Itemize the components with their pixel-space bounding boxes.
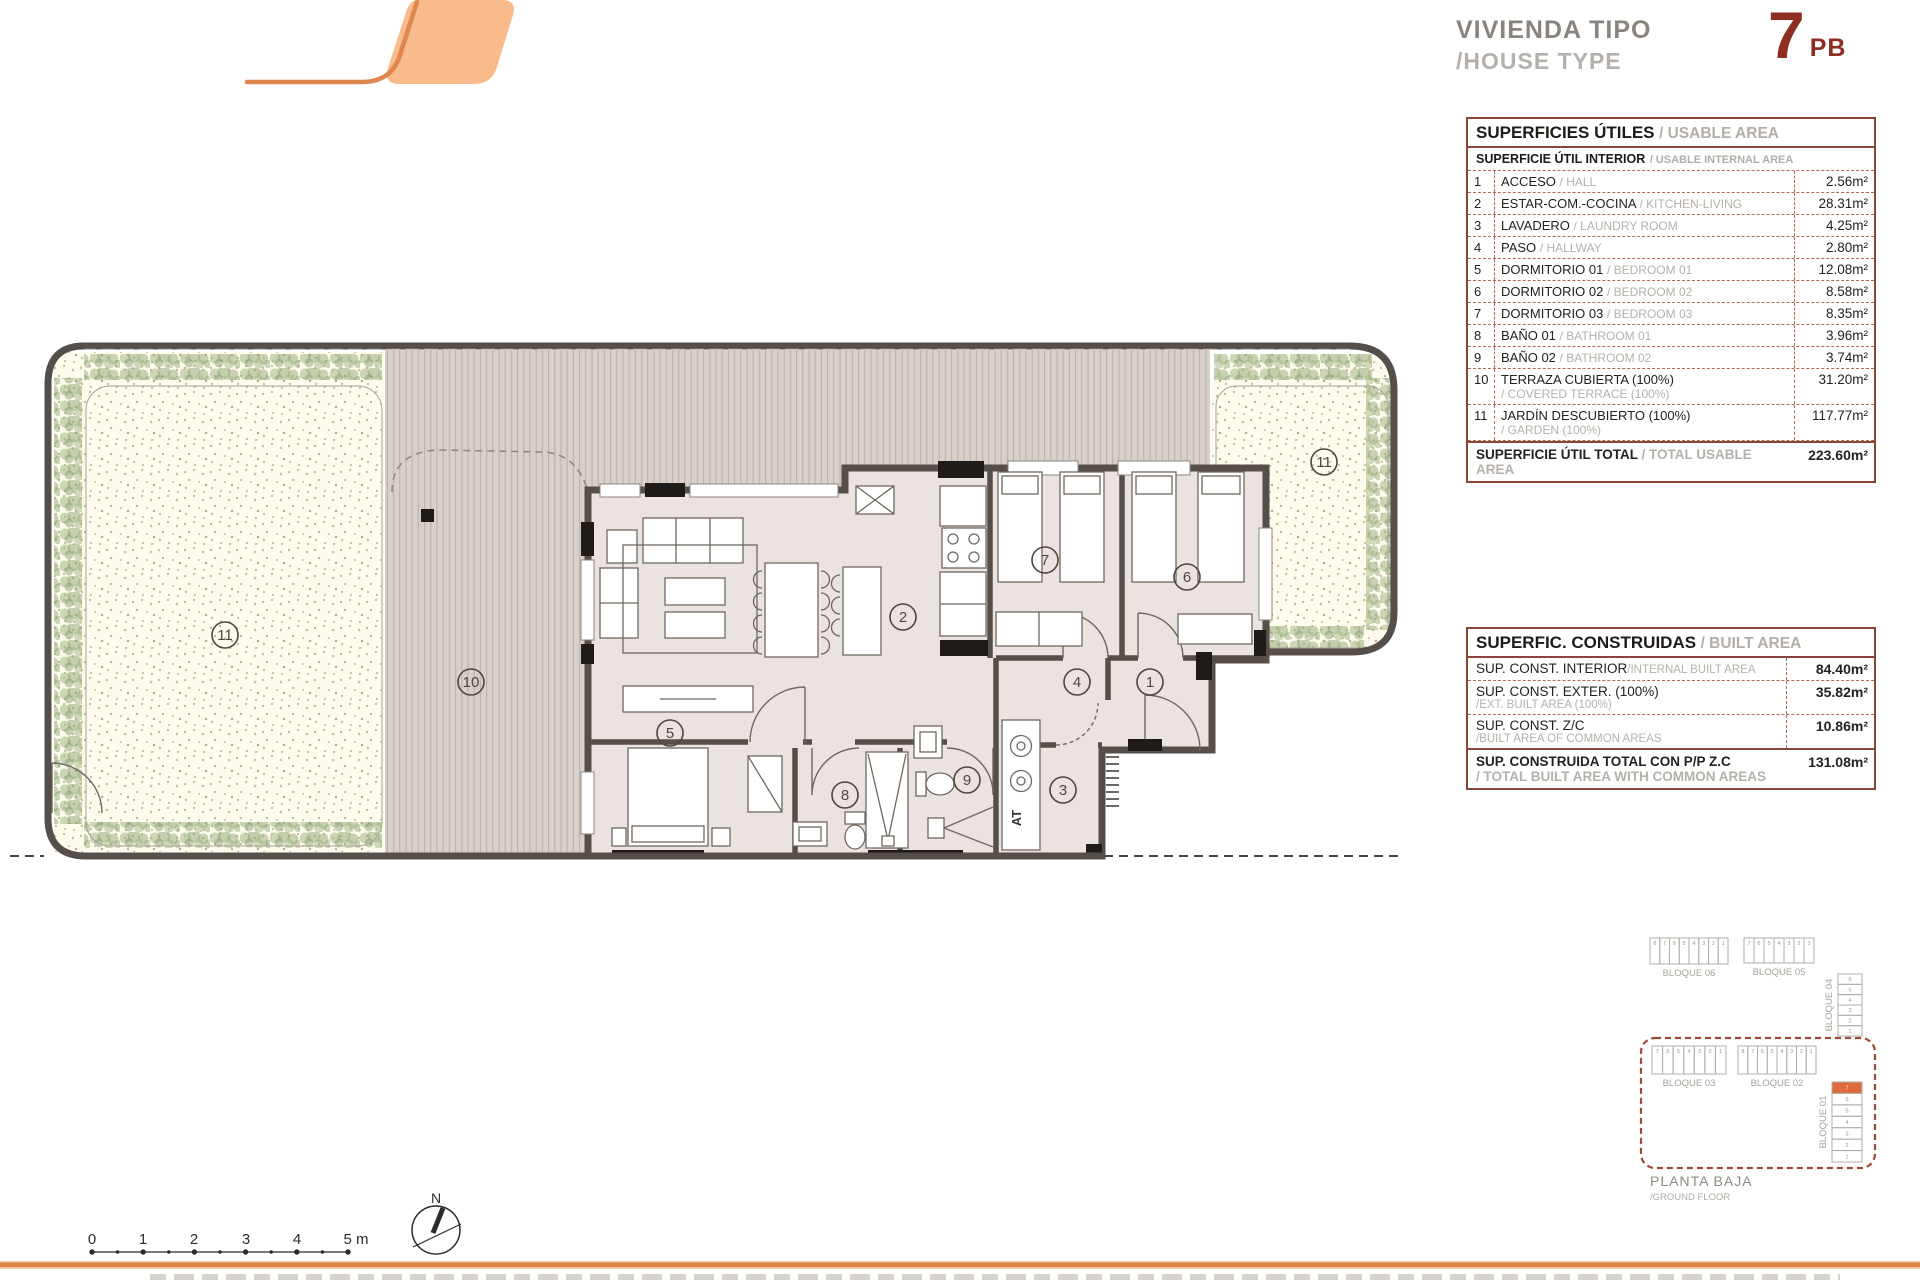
row-en: /EXT. BUILT AREA (100%) — [1476, 699, 1778, 711]
north-label: N — [431, 1190, 441, 1206]
row-en: / LAUNDRY ROOM — [1574, 219, 1678, 233]
room-label-9: 9 — [963, 772, 971, 789]
key-plan-block: 7654321BLOQUE 03 — [1652, 1046, 1726, 1089]
svg-text:2: 2 — [1848, 1019, 1851, 1025]
usable-table-subheader: SUPERFICIE ÚTIL INTERIOR / USABLE INTERN… — [1468, 148, 1874, 171]
key-plan-block: 7654321BLOQUE 01 — [1818, 1082, 1862, 1162]
key-plan-block-label: BLOQUE 01 — [1818, 1096, 1829, 1149]
svg-text:3: 3 — [1790, 1049, 1793, 1055]
table-row: 9BAÑO 02 / BATHROOM 023.74m² — [1468, 347, 1874, 369]
built-area-table: SUPERFIC. CONSTRUIDAS / BUILT AREA SUP. … — [1466, 627, 1876, 790]
scale-labels: 0 1 2 3 4 5 m — [88, 1231, 369, 1248]
row-value: 3.74m² — [1794, 347, 1874, 368]
row-value: 8.58m² — [1794, 281, 1874, 302]
row-names: DORMITORIO 03 / BEDROOM 03 — [1495, 303, 1794, 324]
svg-text:2: 2 — [1845, 1143, 1848, 1149]
key-plan-caption-es: PLANTA BAJA — [1650, 1173, 1753, 1189]
row-value: 2.56m² — [1794, 171, 1874, 192]
row-es: ESTAR-COM.-COCINA — [1501, 196, 1636, 211]
key-plan-caption-en: /GROUND FLOOR — [1650, 1192, 1730, 1203]
usable-table-title: SUPERFICIES ÚTILES / USABLE AREA — [1468, 119, 1874, 148]
scale-label-3: 3 — [242, 1231, 250, 1248]
row-es: JARDÍN DESCUBIERTO (100%) — [1501, 408, 1691, 423]
usable-sub-en: / USABLE INTERNAL AREA — [1650, 154, 1794, 166]
svg-text:1: 1 — [1722, 941, 1725, 947]
scale-label-0: 0 — [88, 1231, 96, 1248]
row-value: 35.82m² — [1786, 681, 1874, 714]
row-en: / BEDROOM 03 — [1607, 307, 1692, 321]
row-es: DORMITORIO 02 — [1501, 284, 1603, 299]
row-names: LAVADERO / LAUNDRY ROOM — [1495, 215, 1794, 236]
row-value: 117.77m² — [1794, 405, 1874, 440]
row-value: 8.35m² — [1794, 303, 1874, 324]
built-title-es: SUPERFIC. CONSTRUIDAS — [1476, 633, 1696, 652]
table-row: 10TERRAZA CUBIERTA (100%) / COVERED TERR… — [1468, 369, 1874, 405]
room-label-10: 10 — [463, 674, 480, 691]
row-names: SUP. CONST. Z/C/BUILT AREA OF COMMON ARE… — [1468, 715, 1786, 748]
svg-text:5: 5 — [1677, 1049, 1680, 1055]
row-names: BAÑO 02 / BATHROOM 02 — [1495, 347, 1794, 368]
row-num: 1 — [1468, 171, 1495, 192]
row-es: PASO — [1501, 240, 1536, 255]
svg-text:7: 7 — [1845, 1086, 1848, 1092]
svg-text:1: 1 — [1719, 1049, 1722, 1055]
svg-text:4: 4 — [1692, 941, 1695, 947]
total-value: 223.60m² — [1786, 446, 1874, 478]
usable-total-row: SUPERFICIE ÚTIL TOTAL / TOTAL USABLE ARE… — [1468, 441, 1874, 481]
row-en: / COVERED TERRACE (100%) — [1501, 387, 1788, 401]
svg-text:4: 4 — [1780, 1049, 1783, 1055]
row-es: SUP. CONST. INTERIOR — [1476, 661, 1627, 676]
table-row: 7DORMITORIO 03 / BEDROOM 038.35m² — [1468, 303, 1874, 325]
svg-text:7: 7 — [1747, 941, 1750, 947]
svg-text:2: 2 — [1709, 1049, 1712, 1055]
scale-label-5: 5 m — [343, 1231, 368, 1248]
svg-text:1: 1 — [1807, 941, 1810, 947]
row-es: DORMITORIO 01 — [1501, 262, 1603, 277]
svg-text:6: 6 — [1845, 1097, 1848, 1103]
usable-title-es: SUPERFICIES ÚTILES — [1476, 123, 1655, 142]
room-label-2: 2 — [899, 609, 907, 626]
built-total-row: SUP. CONSTRUIDA TOTAL CON P/P Z.C/ TOTAL… — [1468, 748, 1874, 788]
table-row: SUP. CONST. INTERIOR/INTERNAL BUILT AREA… — [1468, 658, 1874, 681]
svg-text:6: 6 — [1761, 1049, 1764, 1055]
key-plan-block: 654321BLOQUE 04 — [1824, 974, 1862, 1036]
total-names: SUP. CONSTRUIDA TOTAL CON P/P Z.C/ TOTAL… — [1468, 753, 1786, 785]
usable-sub-es: SUPERFICIE ÚTIL INTERIOR — [1476, 152, 1645, 166]
svg-text:4: 4 — [1845, 1120, 1848, 1126]
row-en: / BATHROOM 01 — [1560, 329, 1652, 343]
row-es: LAVADERO — [1501, 218, 1570, 233]
table-row: 1ACCESO / HALL2.56m² — [1468, 171, 1874, 193]
north-arrow: N — [412, 1190, 461, 1254]
key-plan-block-label: BLOQUE 06 — [1663, 968, 1716, 979]
logo-swoosh — [247, 2, 417, 82]
svg-text:7: 7 — [1751, 1049, 1754, 1055]
row-es: DORMITORIO 03 — [1501, 306, 1603, 321]
row-names: PASO / HALLWAY — [1495, 237, 1794, 258]
svg-text:6: 6 — [1848, 977, 1851, 983]
row-value: 3.96m² — [1794, 325, 1874, 346]
svg-text:5: 5 — [1845, 1109, 1848, 1115]
built-title-en: / BUILT AREA — [1701, 635, 1802, 652]
row-names: DORMITORIO 02 / BEDROOM 02 — [1495, 281, 1794, 302]
scale-label-4: 4 — [293, 1231, 301, 1248]
scale-label-1: 1 — [139, 1231, 147, 1248]
unit-suffix: PB — [1810, 34, 1847, 63]
row-en: /BUILT AREA OF COMMON AREAS — [1476, 733, 1778, 745]
scale-bar — [90, 1250, 350, 1254]
svg-text:7: 7 — [1663, 941, 1666, 947]
row-names: SUP. CONST. INTERIOR/INTERNAL BUILT AREA — [1468, 658, 1786, 680]
row-es: BAÑO 02 — [1501, 350, 1556, 365]
row-en: / BEDROOM 01 — [1607, 263, 1692, 277]
svg-text:5: 5 — [1767, 941, 1770, 947]
room-label-8: 8 — [841, 787, 849, 804]
svg-text:6: 6 — [1673, 941, 1676, 947]
row-es: ACCESO — [1501, 174, 1556, 189]
svg-text:4: 4 — [1777, 941, 1780, 947]
row-num: 10 — [1468, 369, 1495, 404]
row-names: DORMITORIO 01 / BEDROOM 01 — [1495, 259, 1794, 280]
svg-text:6: 6 — [1666, 1049, 1669, 1055]
room-label-4: 4 — [1073, 674, 1081, 691]
table-row: 6DORMITORIO 02 / BEDROOM 028.58m² — [1468, 281, 1874, 303]
row-num: 4 — [1468, 237, 1495, 258]
at-label: AT — [1009, 810, 1024, 826]
usable-title-en: / USABLE AREA — [1659, 125, 1779, 142]
total-es: SUPERFICIE ÚTIL TOTAL — [1476, 447, 1638, 462]
row-en: / HALL — [1560, 175, 1597, 189]
bottom-accent-band — [0, 1261, 1920, 1269]
svg-text:3: 3 — [1845, 1131, 1848, 1137]
row-en: / BEDROOM 02 — [1607, 285, 1692, 299]
svg-text:3: 3 — [1702, 941, 1705, 947]
built-table-title: SUPERFIC. CONSTRUIDAS / BUILT AREA — [1468, 629, 1874, 658]
svg-text:1: 1 — [1845, 1154, 1848, 1160]
svg-text:2: 2 — [1797, 941, 1800, 947]
row-num: 9 — [1468, 347, 1495, 368]
row-num: 5 — [1468, 259, 1495, 280]
row-num: 7 — [1468, 303, 1495, 324]
row-value: 31.20m² — [1794, 369, 1874, 404]
radiator — [1106, 757, 1119, 806]
svg-text:1: 1 — [1810, 1049, 1813, 1055]
unit-number: 7 — [1768, 2, 1805, 68]
room-label-5: 5 — [666, 725, 674, 742]
row-value: 2.80m² — [1794, 237, 1874, 258]
row-num: 3 — [1468, 215, 1495, 236]
row-en: / KITCHEN-LIVING — [1639, 197, 1742, 211]
total-value: 131.08m² — [1786, 753, 1874, 785]
house-type-badge: 7 PB — [1768, 2, 1846, 68]
row-es: BAÑO 01 — [1501, 328, 1556, 343]
row-value: 84.40m² — [1786, 658, 1874, 680]
svg-text:8: 8 — [1653, 941, 1656, 947]
scale-label-2: 2 — [190, 1231, 198, 1248]
row-names: SUP. CONST. EXTER. (100%)/EXT. BUILT ARE… — [1468, 681, 1786, 714]
svg-text:5: 5 — [1848, 988, 1851, 994]
row-names: BAÑO 01 / BATHROOM 01 — [1495, 325, 1794, 346]
row-num: 6 — [1468, 281, 1495, 302]
row-num: 11 — [1468, 405, 1495, 440]
row-en: / BATHROOM 02 — [1560, 351, 1652, 365]
table-row: 8BAÑO 01 / BATHROOM 013.96m² — [1468, 325, 1874, 347]
room-label-7: 7 — [1041, 552, 1049, 569]
key-plan-block: 87654321BLOQUE 02 — [1738, 1046, 1816, 1089]
row-num: 2 — [1468, 193, 1495, 214]
key-plan-block-label: BLOQUE 03 — [1663, 1078, 1716, 1089]
usable-area-table: SUPERFICIES ÚTILES / USABLE AREA SUPERFI… — [1466, 117, 1876, 483]
svg-text:4: 4 — [1848, 998, 1851, 1004]
row-names: ESTAR-COM.-COCINA / KITCHEN-LIVING — [1495, 193, 1794, 214]
svg-text:3: 3 — [1698, 1049, 1701, 1055]
row-es: SUP. CONST. EXTER. (100%) — [1476, 684, 1659, 699]
total-en: / TOTAL BUILT AREA WITH COMMON AREAS — [1476, 769, 1778, 784]
key-plan-block: 7654321BLOQUE 05 — [1744, 938, 1814, 978]
key-plan-block-label: BLOQUE 02 — [1751, 1078, 1804, 1089]
table-row: SUP. CONST. EXTER. (100%)/EXT. BUILT ARE… — [1468, 681, 1874, 715]
row-names: JARDÍN DESCUBIERTO (100%) / GARDEN (100%… — [1495, 405, 1794, 440]
row-num: 8 — [1468, 325, 1495, 346]
key-plan-block-label: BLOQUE 04 — [1824, 979, 1835, 1032]
svg-text:3: 3 — [1787, 941, 1790, 947]
bottom-cutoff-text — [150, 1274, 1840, 1280]
svg-text:2: 2 — [1800, 1049, 1803, 1055]
plan-sheet: VIVIENDA TIPO /HOUSE TYPE 7 PB SUPERFICI… — [0, 0, 1920, 1280]
row-value: 28.31m² — [1794, 193, 1874, 214]
table-row: SUP. CONST. Z/C/BUILT AREA OF COMMON ARE… — [1468, 715, 1874, 748]
left-garden — [54, 352, 384, 852]
table-row: 4PASO / HALLWAY2.80m² — [1468, 237, 1874, 259]
row-es: SUP. CONST. Z/C — [1476, 718, 1585, 733]
svg-text:6: 6 — [1757, 941, 1760, 947]
svg-text:4: 4 — [1687, 1049, 1690, 1055]
row-value: 4.25m² — [1794, 215, 1874, 236]
table-row: 2ESTAR-COM.-COCINA / KITCHEN-LIVING28.31… — [1468, 193, 1874, 215]
svg-text:7: 7 — [1656, 1049, 1659, 1055]
svg-text:3: 3 — [1848, 1008, 1851, 1014]
table-row: 5DORMITORIO 01 / BEDROOM 0112.08m² — [1468, 259, 1874, 281]
row-names: TERRAZA CUBIERTA (100%) / COVERED TERRAC… — [1495, 369, 1794, 404]
key-plan: 87654321BLOQUE 067654321BLOQUE 05654321B… — [1630, 925, 1900, 1215]
svg-text:5: 5 — [1683, 941, 1686, 947]
row-en: / HALLWAY — [1540, 241, 1602, 255]
svg-text:2: 2 — [1712, 941, 1715, 947]
total-es: SUP. CONSTRUIDA TOTAL CON P/P Z.C — [1476, 754, 1731, 769]
key-plan-block-label: BLOQUE 05 — [1753, 967, 1806, 978]
brand-logo — [230, 0, 530, 95]
svg-text:5: 5 — [1771, 1049, 1774, 1055]
svg-text:8: 8 — [1741, 1049, 1744, 1055]
row-value: 10.86m² — [1786, 715, 1874, 748]
row-en: /INTERNAL BUILT AREA — [1627, 664, 1755, 676]
floor-plan: AT 1 2 3 4 5 6 7 8 — [0, 330, 1460, 875]
column — [421, 509, 434, 522]
key-plan-block: 87654321BLOQUE 06 — [1650, 938, 1728, 979]
row-names: ACCESO / HALL — [1495, 171, 1794, 192]
room-label-11-left: 11 — [217, 627, 233, 644]
key-plan-blocks: 87654321BLOQUE 067654321BLOQUE 05654321B… — [1650, 938, 1862, 1162]
room-label-11-right: 11 — [1316, 454, 1332, 471]
row-value: 12.08m² — [1794, 259, 1874, 280]
row-es: TERRAZA CUBIERTA (100%) — [1501, 372, 1674, 387]
total-names: SUPERFICIE ÚTIL TOTAL / TOTAL USABLE ARE… — [1468, 446, 1786, 478]
room-label-3: 3 — [1059, 782, 1067, 799]
table-row: 11JARDÍN DESCUBIERTO (100%) / GARDEN (10… — [1468, 405, 1874, 441]
room-label-1: 1 — [1146, 674, 1154, 691]
row-en: / GARDEN (100%) — [1501, 423, 1788, 437]
room-label-6: 6 — [1183, 569, 1191, 586]
table-row: 3LAVADERO / LAUNDRY ROOM4.25m² — [1468, 215, 1874, 237]
svg-text:1: 1 — [1848, 1029, 1851, 1035]
